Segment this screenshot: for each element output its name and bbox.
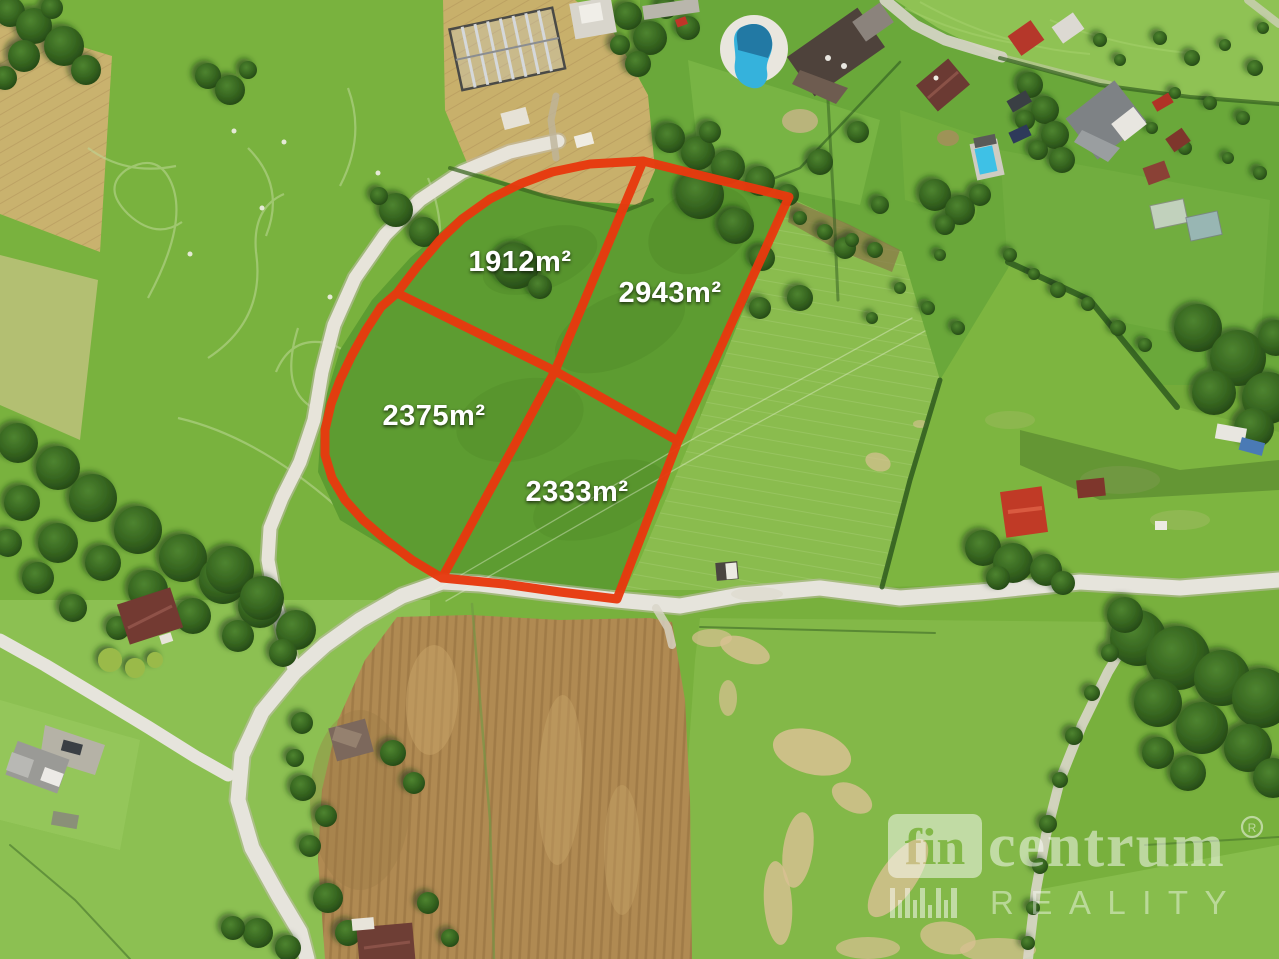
tree — [221, 916, 245, 940]
tree — [1134, 679, 1182, 727]
tree — [655, 123, 685, 153]
shed-dark-red — [1076, 478, 1106, 499]
tree — [614, 2, 642, 30]
tree — [969, 184, 991, 206]
tree — [633, 21, 667, 55]
tree — [866, 312, 878, 324]
tree — [871, 196, 889, 214]
tree — [1257, 22, 1269, 34]
plot-label-2333: 2333m² — [526, 476, 629, 508]
tree — [749, 297, 771, 319]
tree — [175, 598, 211, 634]
tree — [986, 566, 1010, 590]
tree — [1021, 936, 1035, 950]
tree — [441, 929, 459, 947]
aerial-photo: fin — [0, 0, 1279, 959]
tree — [1142, 737, 1174, 769]
aerial-photo-canvas: fin — [0, 0, 1279, 959]
tree — [215, 75, 245, 105]
tree — [1138, 338, 1152, 352]
tree — [291, 712, 313, 734]
tree — [71, 55, 101, 85]
tree — [847, 121, 869, 143]
tree — [370, 187, 388, 205]
chimney — [934, 76, 939, 81]
tree — [1051, 571, 1075, 595]
plot-label-2943: 2943m² — [619, 277, 722, 309]
tree — [1170, 755, 1206, 791]
tree — [4, 485, 40, 521]
dry-patch — [985, 411, 1035, 429]
tree — [1247, 60, 1263, 76]
tree — [403, 772, 425, 794]
bush — [125, 658, 145, 678]
tree — [625, 51, 651, 77]
tree — [1052, 772, 1068, 788]
tree — [1003, 248, 1017, 262]
tree — [807, 149, 833, 175]
registered-mark-letter: R — [1248, 821, 1257, 835]
tree — [1114, 54, 1126, 66]
tree — [921, 301, 935, 315]
tree — [528, 275, 552, 299]
tree — [222, 620, 254, 652]
bush — [793, 211, 807, 225]
tree — [1203, 96, 1217, 110]
tree — [36, 446, 80, 490]
tree — [1049, 147, 1075, 173]
tree — [1184, 50, 1200, 66]
tree — [1146, 122, 1158, 134]
plot-label-1912: 1912m² — [469, 246, 572, 278]
tree — [380, 740, 406, 766]
tree — [114, 506, 162, 554]
bush — [147, 652, 163, 668]
dormer — [841, 63, 847, 69]
dormer — [825, 55, 831, 61]
tree — [290, 775, 316, 801]
tree — [22, 562, 54, 594]
tree — [69, 474, 117, 522]
tree — [1093, 33, 1107, 47]
shed-white-tiny — [1155, 521, 1167, 530]
tree — [1176, 702, 1228, 754]
tree — [951, 321, 965, 335]
tree — [1081, 297, 1095, 311]
watermark-fin-box — [888, 814, 982, 878]
tree — [38, 523, 78, 563]
tree — [417, 892, 439, 914]
tree — [1050, 282, 1066, 298]
bush — [98, 648, 122, 672]
tree — [699, 121, 721, 143]
tree — [1084, 685, 1100, 701]
tree — [8, 40, 40, 72]
shed-field — [715, 561, 738, 581]
track-to-frame — [551, 96, 556, 158]
garden-bed — [782, 109, 818, 133]
tree — [286, 749, 304, 767]
bush — [867, 242, 883, 258]
watermark-subtitle: REALITY — [990, 884, 1243, 921]
tree — [610, 35, 630, 55]
tree — [1110, 320, 1126, 336]
tree — [313, 883, 343, 913]
tree — [1028, 140, 1048, 160]
tree — [787, 285, 813, 311]
plough-light-streak — [604, 785, 640, 915]
tree — [85, 545, 121, 581]
plot-label-2375: 2375m² — [383, 400, 486, 432]
tree — [269, 639, 297, 667]
watermark-logo: centrum R REALITY — [888, 812, 1262, 921]
tree — [1031, 96, 1059, 124]
tree — [315, 805, 337, 827]
tree — [239, 61, 257, 79]
road-pullout — [731, 587, 783, 601]
tree — [1153, 31, 1167, 45]
barn-red — [1000, 486, 1048, 537]
tree — [1101, 644, 1119, 662]
bush — [817, 224, 833, 240]
garden-bed — [937, 130, 959, 146]
tree — [1065, 727, 1083, 745]
tree — [1192, 371, 1236, 415]
tree — [1219, 39, 1231, 51]
house-wall-white — [352, 917, 375, 931]
tree — [240, 576, 284, 620]
watermark-brand-suffix: centrum — [988, 812, 1226, 880]
tree — [299, 835, 321, 857]
tree — [1169, 87, 1181, 99]
tree — [243, 918, 273, 948]
tree — [935, 215, 955, 235]
tree — [1222, 152, 1234, 164]
tree — [718, 208, 754, 244]
tree — [1236, 111, 1250, 125]
tree — [1028, 268, 1040, 280]
tree — [1253, 166, 1267, 180]
tree — [894, 282, 906, 294]
tree — [934, 249, 946, 261]
tree — [59, 594, 87, 622]
bush — [845, 233, 859, 247]
tree — [1107, 597, 1143, 633]
